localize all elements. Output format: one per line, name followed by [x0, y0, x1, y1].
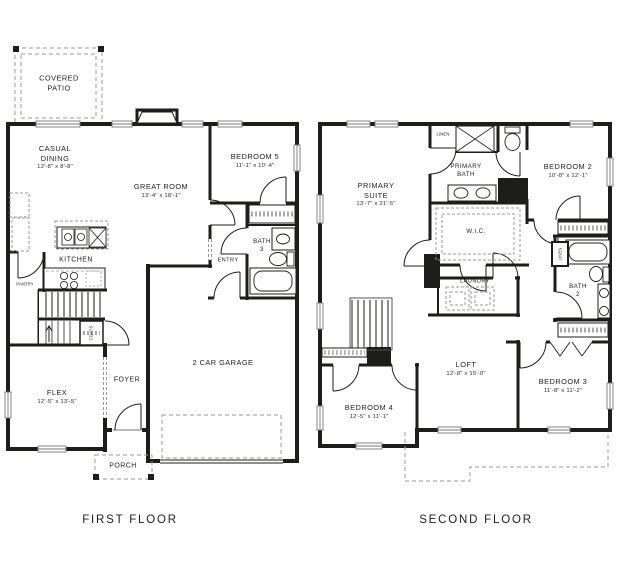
room-label-porch: PORCH: [109, 461, 137, 470]
front-door: [112, 404, 142, 433]
room-label-kitchen: KITCHEN: [59, 255, 93, 264]
room-dims: 10'-8" x 12'-1": [544, 172, 592, 180]
patio-posts: [13, 46, 104, 52]
room-dims: 12'-8" x 15'-0": [446, 370, 485, 378]
room-name: ENTRY: [217, 257, 238, 264]
room-name: LOFT: [446, 360, 485, 370]
room-label-wic: W.I.C.: [466, 228, 486, 236]
first-floor-plan: [5, 46, 300, 480]
room-name: 2 CAR GARAGE: [193, 358, 254, 368]
room-name: PRIMARY BATH: [450, 163, 481, 179]
garage-door: [160, 415, 283, 465]
room-label-laundry: LAUNDRY: [460, 278, 490, 285]
room-label-bedroom4: BEDROOM 412'-5" x 11'-1": [345, 403, 393, 421]
room-label-bedroom3: BEDROOM 311'-8" x 11'-2": [539, 377, 587, 395]
laundry-appliances: [446, 287, 494, 310]
room-dims: 13'-7" x 21'-5": [356, 201, 395, 209]
room-name: FLEX: [37, 388, 76, 398]
room-name: BATH 3: [253, 238, 271, 254]
roof-outline-dashed: [405, 432, 608, 481]
second-floor-caption: SECOND FLOOR: [419, 514, 533, 526]
stairs-second-floor: [350, 298, 392, 350]
stair-rail: [322, 348, 367, 357]
room-name: BATH 2: [569, 283, 587, 299]
room-label-bath3: BATH 3: [253, 238, 271, 254]
room-name: PANTRY: [16, 281, 34, 286]
room-label-flex: FLEX12'-5" x 13'-5": [37, 388, 76, 406]
room-label-primary-bath: PRIMARY BATH: [450, 163, 481, 179]
room-name: PRIMARY SUITE: [356, 181, 395, 200]
room-name: PORCH: [109, 461, 137, 470]
floor-plan-drawing: [0, 0, 617, 582]
room-name: LINEN: [557, 247, 562, 260]
room-name: COATS: [88, 326, 93, 341]
room-label-linen-top: LINEN: [436, 131, 449, 136]
room-name: W.I.C.: [466, 228, 486, 236]
room-label-linen-side: LINEN: [557, 247, 562, 260]
room-label-coats: COATS: [88, 326, 93, 341]
room-name: COVERED PATIO: [39, 73, 79, 92]
fireplace: [137, 110, 177, 124]
room-name: LINEN: [436, 131, 449, 136]
room-label-garage: 2 CAR GARAGE: [193, 358, 254, 368]
kitchen-fixtures: [10, 193, 108, 289]
room-dims: 11'-1" x 10'-4": [231, 162, 279, 170]
room-label-pantry: PANTRY: [16, 281, 34, 286]
room-name: BEDROOM 3: [539, 377, 587, 387]
room-name: GREAT ROOM: [134, 182, 188, 192]
room-name: CASUAL DINING: [37, 144, 73, 163]
room-name: FOYER: [114, 375, 140, 384]
room-name: LAUNDRY: [460, 278, 490, 285]
room-label-loft: LOFT12'-8" x 15'-0": [446, 360, 485, 378]
room-label-primary-suite: PRIMARY SUITE13'-7" x 21'-5": [356, 181, 395, 209]
room-dims: 11'-8" x 11'-2": [539, 387, 587, 395]
room-label-foyer: FOYER: [114, 375, 140, 384]
room-name: BEDROOM 2: [544, 162, 592, 172]
first-floor-caption: FIRST FLOOR: [82, 514, 178, 526]
room-dims: 13'-4" x 18'-1": [134, 192, 188, 200]
room-name: BEDROOM 5: [231, 152, 279, 162]
room-label-casual-dining: CASUAL DINING12'-8" x 8'-8": [37, 144, 73, 172]
room-label-covered-patio: COVERED PATIO: [39, 73, 79, 92]
bedroom5-closet: [249, 205, 295, 223]
room-label-great-room: GREAT ROOM13'-4" x 18'-1": [134, 182, 188, 200]
kitchen-range: [44, 268, 105, 289]
room-label-bath2: BATH 2: [569, 283, 587, 299]
room-label-entry: ENTRY: [217, 257, 238, 264]
room-name: KITCHEN: [59, 255, 93, 264]
room-name: BEDROOM 4: [345, 403, 393, 413]
floor-plan-figure: COVERED PATIO CASUAL DINING12'-8" x 8'-8…: [0, 0, 617, 582]
kitchen-island: [57, 227, 106, 248]
room-label-bedroom5: BEDROOM 511'-1" x 10'-4": [231, 152, 279, 170]
room-dims: 12'-8" x 8'-8": [37, 164, 73, 172]
room-dims: 12'-5" x 13'-5": [37, 398, 76, 406]
room-dims: 12'-5" x 11'-1": [345, 413, 393, 421]
room-label-bedroom2: BEDROOM 210'-8" x 12'-1": [544, 162, 592, 180]
